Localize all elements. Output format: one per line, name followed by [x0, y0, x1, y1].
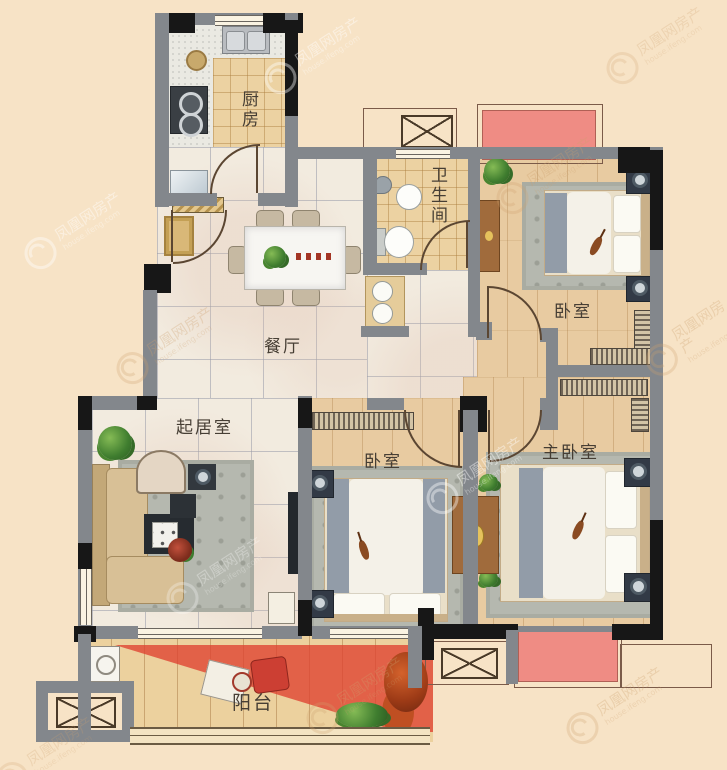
wall [518, 626, 616, 632]
table-plant-icon [264, 246, 286, 268]
vanity-basin-icon [372, 303, 393, 324]
end-table [188, 464, 216, 490]
wall-column [430, 624, 518, 639]
phoenix-logo-icon [600, 46, 644, 90]
watermark: 凤凰网房产house.ifeng.com [600, 2, 712, 90]
bedroom-north-door-leaf [487, 286, 489, 338]
dresser [478, 200, 500, 272]
bedroom-middle-label: 卧室 [364, 447, 402, 472]
wall [367, 398, 404, 410]
placemats-icon [296, 253, 332, 260]
wall-column [144, 264, 171, 293]
wall [296, 147, 368, 159]
wall [363, 147, 377, 275]
wall-column [298, 600, 312, 636]
tv-console [288, 492, 298, 574]
balcony-label: 阳台 [232, 688, 274, 715]
wall [143, 290, 157, 400]
bedroom-middle-window [330, 628, 418, 639]
wall [155, 13, 169, 207]
wall-column [650, 520, 663, 634]
kitchen-label: 厨房 [236, 90, 261, 130]
wall [363, 263, 427, 275]
wall [408, 626, 422, 688]
bedroom-middle-door-leaf [458, 410, 460, 466]
wall-column [612, 624, 663, 640]
toilet-bowl-icon [384, 226, 414, 258]
wardrobe-hatch [631, 398, 649, 432]
kitchen-window [215, 15, 263, 26]
master-bedroom-label: 主卧室 [542, 438, 599, 463]
vanity-basin-icon [372, 281, 393, 302]
plant-icon [484, 158, 510, 184]
bathroom-label: 卫生间 [425, 166, 450, 226]
plate-icon [186, 50, 207, 71]
armchair [136, 450, 186, 494]
wall [546, 365, 663, 377]
wall [506, 630, 518, 684]
ac-unit-top-icon [401, 115, 453, 148]
nightstand [624, 458, 653, 487]
wall-column [78, 396, 92, 430]
wall [155, 193, 217, 206]
wall-column [78, 543, 92, 569]
wall [361, 326, 409, 337]
balcony-plant-icon [336, 702, 388, 728]
bedroom-middle-bed [324, 478, 448, 622]
living-label: 起居室 [176, 413, 233, 438]
wall [262, 626, 302, 639]
wall-column [137, 396, 157, 410]
wall-column [285, 20, 298, 116]
flower-icon [168, 538, 192, 562]
entry-door-leaf [171, 210, 173, 262]
bedroom-north-label: 卧室 [554, 297, 592, 322]
phoenix-logo-icon [18, 231, 62, 275]
wall-column [650, 150, 663, 250]
nightstand [624, 573, 653, 602]
platform-bottom-right-frame [620, 644, 712, 688]
wall-column [298, 398, 312, 428]
kitchen-door-leaf [256, 145, 258, 193]
bedroom-north-bed [544, 190, 650, 276]
plant-icon [98, 426, 132, 460]
bath-sink-icon [396, 184, 422, 210]
watermark-domain: house.ifeng.com [61, 204, 128, 252]
wardrobe-hatch [312, 412, 414, 430]
watermark-brand: 凤凰网房产 [51, 188, 124, 244]
wall [258, 193, 286, 206]
balcony-slider-door [138, 628, 262, 639]
stove-icon [170, 86, 208, 134]
end-table-white [268, 592, 295, 624]
side-table [170, 494, 196, 518]
plant-icon [479, 474, 498, 491]
watermark: 凤凰网房产house.ifeng.com [18, 187, 130, 275]
wardrobe-hatch [590, 348, 652, 365]
wall [463, 410, 478, 632]
sofa-chaise [106, 556, 184, 604]
bathroom-door-leaf [466, 221, 468, 268]
dining-label: 餐厅 [264, 332, 302, 357]
wall [540, 328, 558, 342]
flower-bed-bottom [518, 630, 618, 682]
washing-machine-icon [90, 646, 120, 682]
master-door-leaf [488, 410, 490, 460]
wardrobe-hatch [634, 310, 651, 352]
bathroom-window [396, 149, 450, 159]
balcony-rail [130, 727, 430, 745]
phoenix-logo-icon [0, 756, 35, 770]
wardrobe-hatch [560, 379, 648, 396]
floor-plan: 厨房 餐厅 卫生间 卧室 起居室 卧室 主卧室 阳台 凤凰网房产house.if… [0, 0, 727, 770]
ac-unit-bottom-icon [441, 648, 498, 679]
phoenix-logo-icon [560, 706, 604, 750]
living-west-window [80, 569, 92, 625]
wall [92, 626, 138, 639]
wall [78, 634, 91, 742]
